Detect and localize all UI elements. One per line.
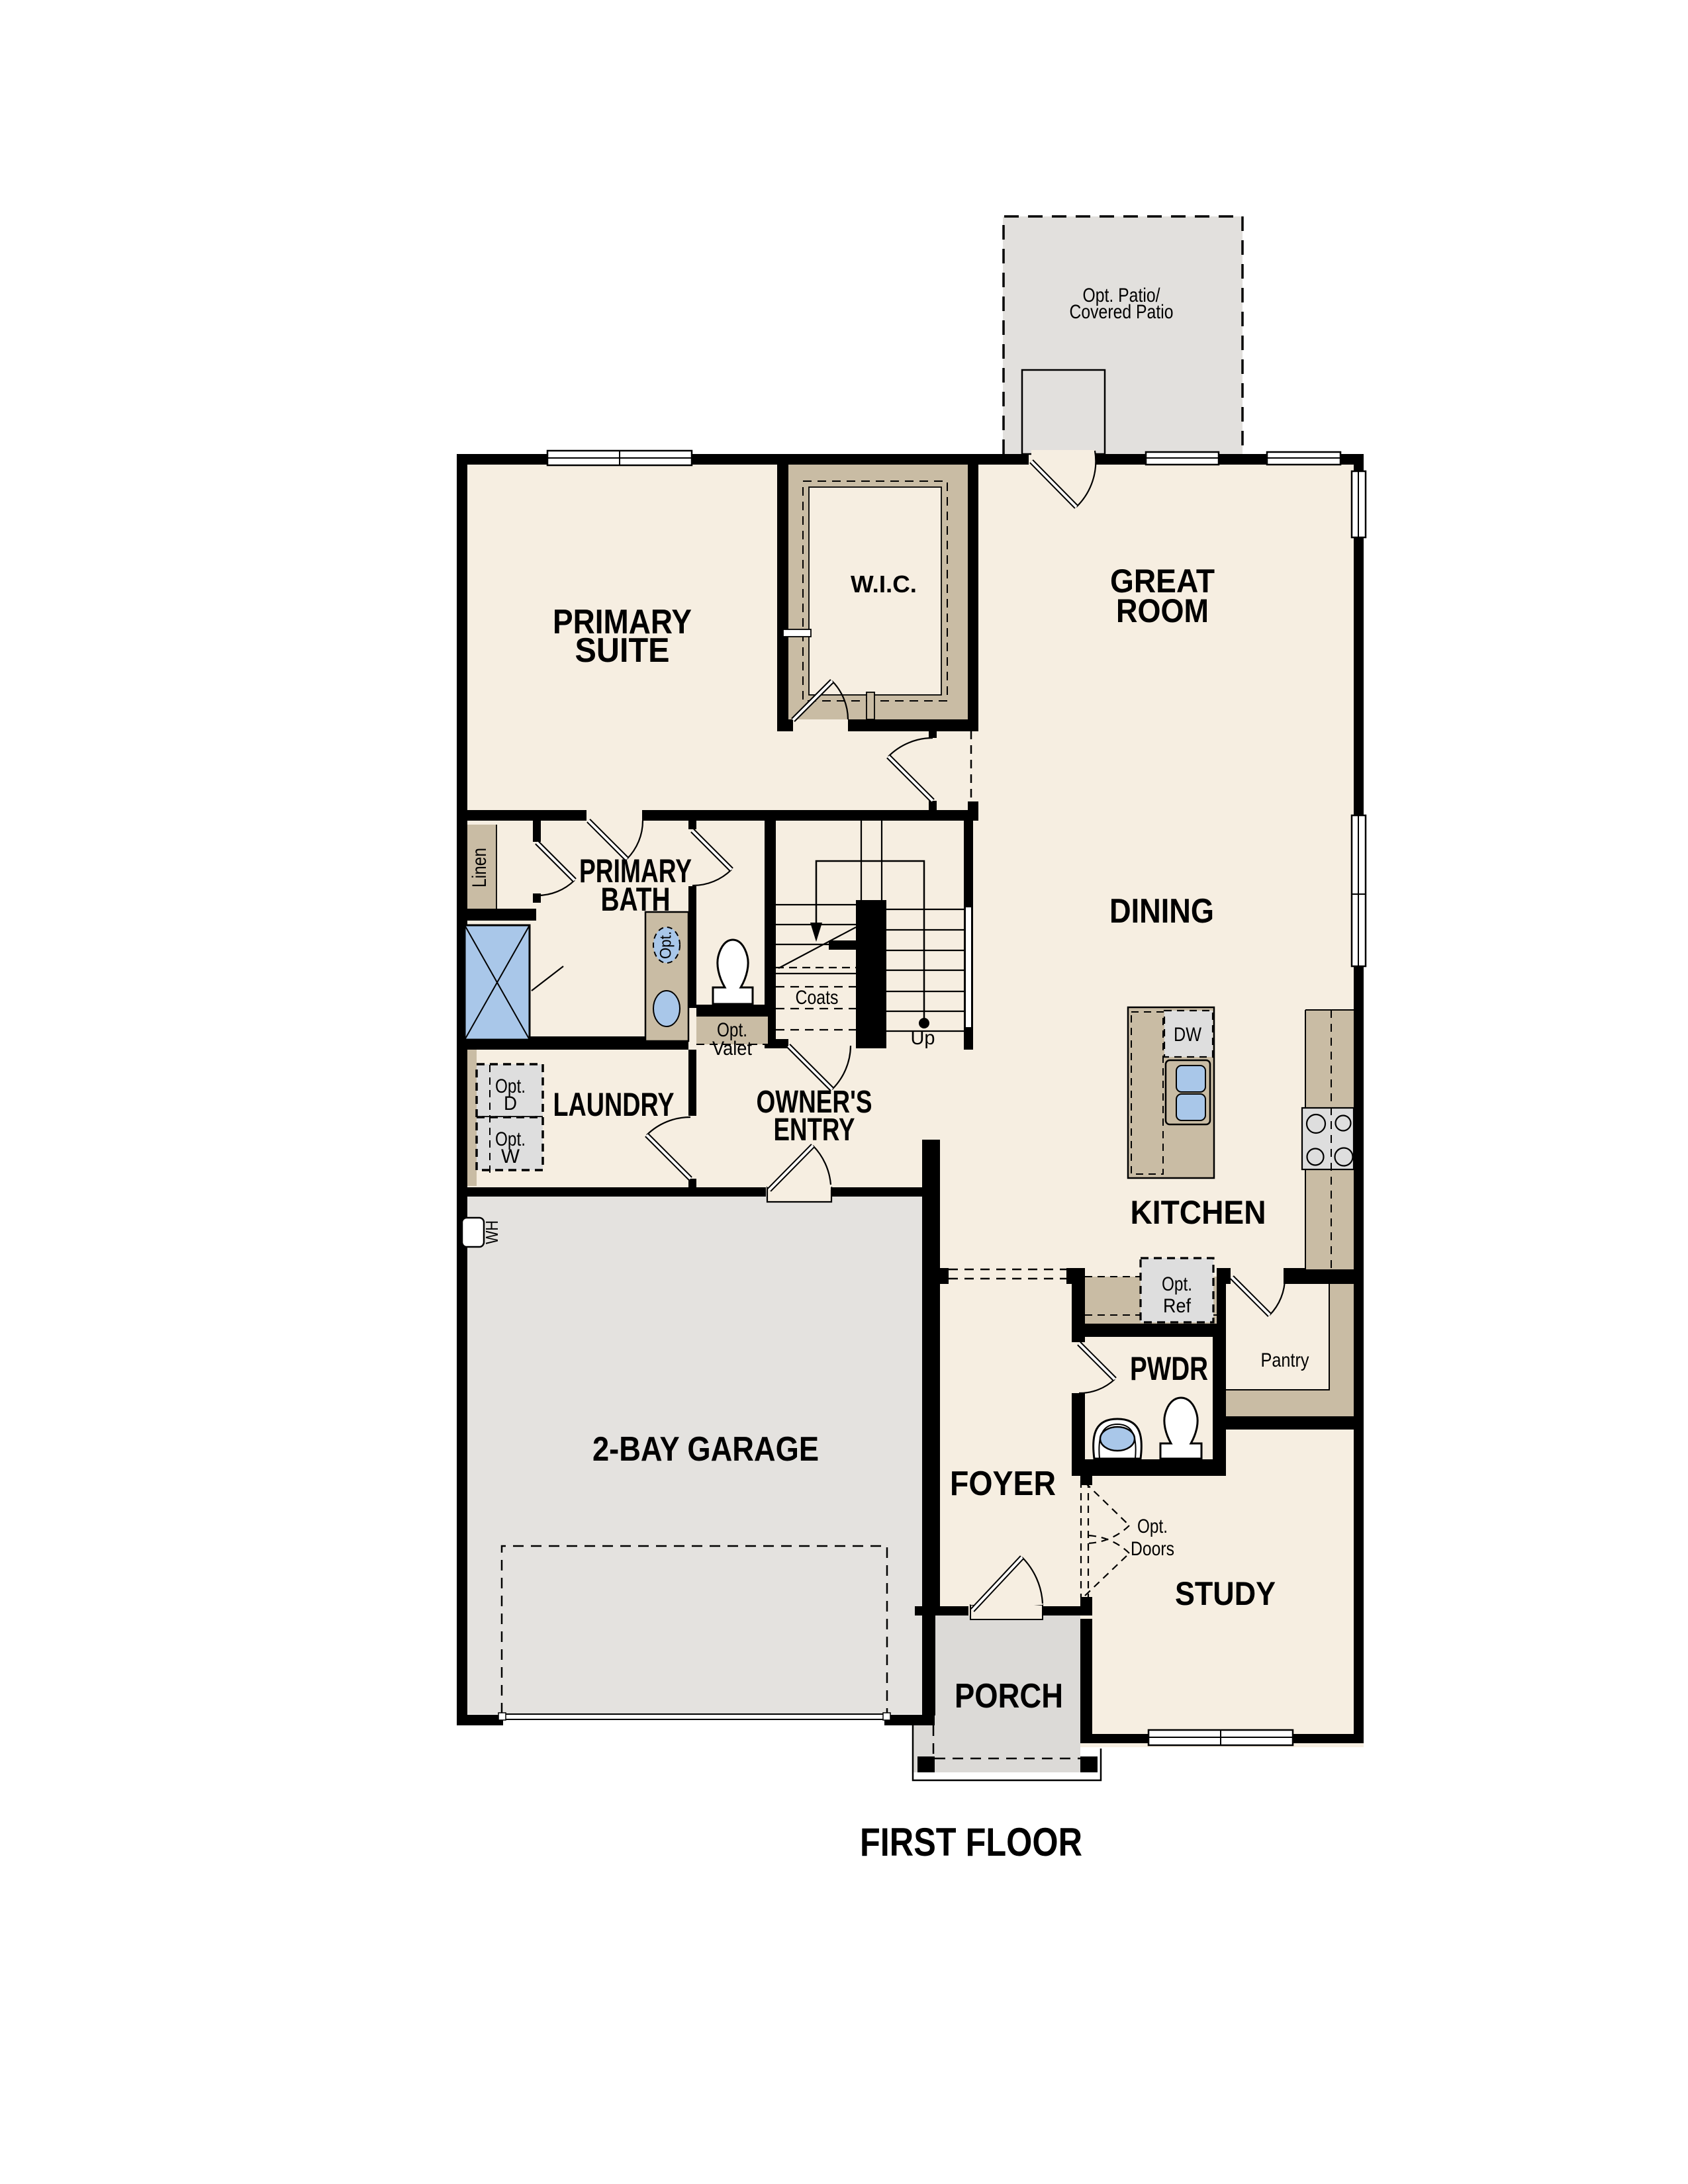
svg-text:Up: Up — [911, 1027, 935, 1049]
svg-text:2-BAY GARAGE: 2-BAY GARAGE — [592, 1430, 819, 1469]
svg-text:STUDY: STUDY — [1175, 1575, 1276, 1612]
svg-text:DINING: DINING — [1109, 892, 1214, 931]
svg-text:ENTRY: ENTRY — [774, 1113, 855, 1148]
svg-text:Covered Patio: Covered Patio — [1070, 301, 1174, 323]
svg-text:FOYER: FOYER — [950, 1465, 1056, 1503]
svg-text:KITCHEN: KITCHEN — [1131, 1194, 1266, 1231]
svg-text:Valet: Valet — [712, 1038, 753, 1060]
svg-text:Coats: Coats — [796, 987, 839, 1009]
svg-text:W: W — [501, 1146, 520, 1167]
svg-text:Pantry: Pantry — [1261, 1349, 1309, 1371]
svg-text:Linen: Linen — [469, 848, 491, 887]
svg-text:W.I.C.: W.I.C. — [851, 570, 917, 598]
svg-text:BATH: BATH — [601, 881, 671, 918]
svg-text:DW: DW — [1174, 1024, 1202, 1046]
svg-text:Opt.: Opt. — [1137, 1516, 1168, 1537]
svg-text:PORCH: PORCH — [955, 1677, 1063, 1715]
svg-text:D: D — [504, 1093, 517, 1115]
svg-text:Opt.: Opt. — [657, 931, 675, 959]
svg-text:WH: WH — [482, 1220, 502, 1244]
svg-text:Ref: Ref — [1163, 1295, 1192, 1317]
svg-text:Opt.: Opt. — [1162, 1273, 1192, 1295]
svg-text:LAUNDRY: LAUNDRY — [553, 1086, 675, 1123]
svg-text:ROOM: ROOM — [1116, 592, 1209, 629]
svg-text:SUITE: SUITE — [575, 631, 670, 670]
svg-text:PWDR: PWDR — [1130, 1350, 1208, 1387]
svg-text:Doors: Doors — [1131, 1538, 1174, 1560]
svg-text:FIRST FLOOR: FIRST FLOOR — [860, 1820, 1082, 1864]
